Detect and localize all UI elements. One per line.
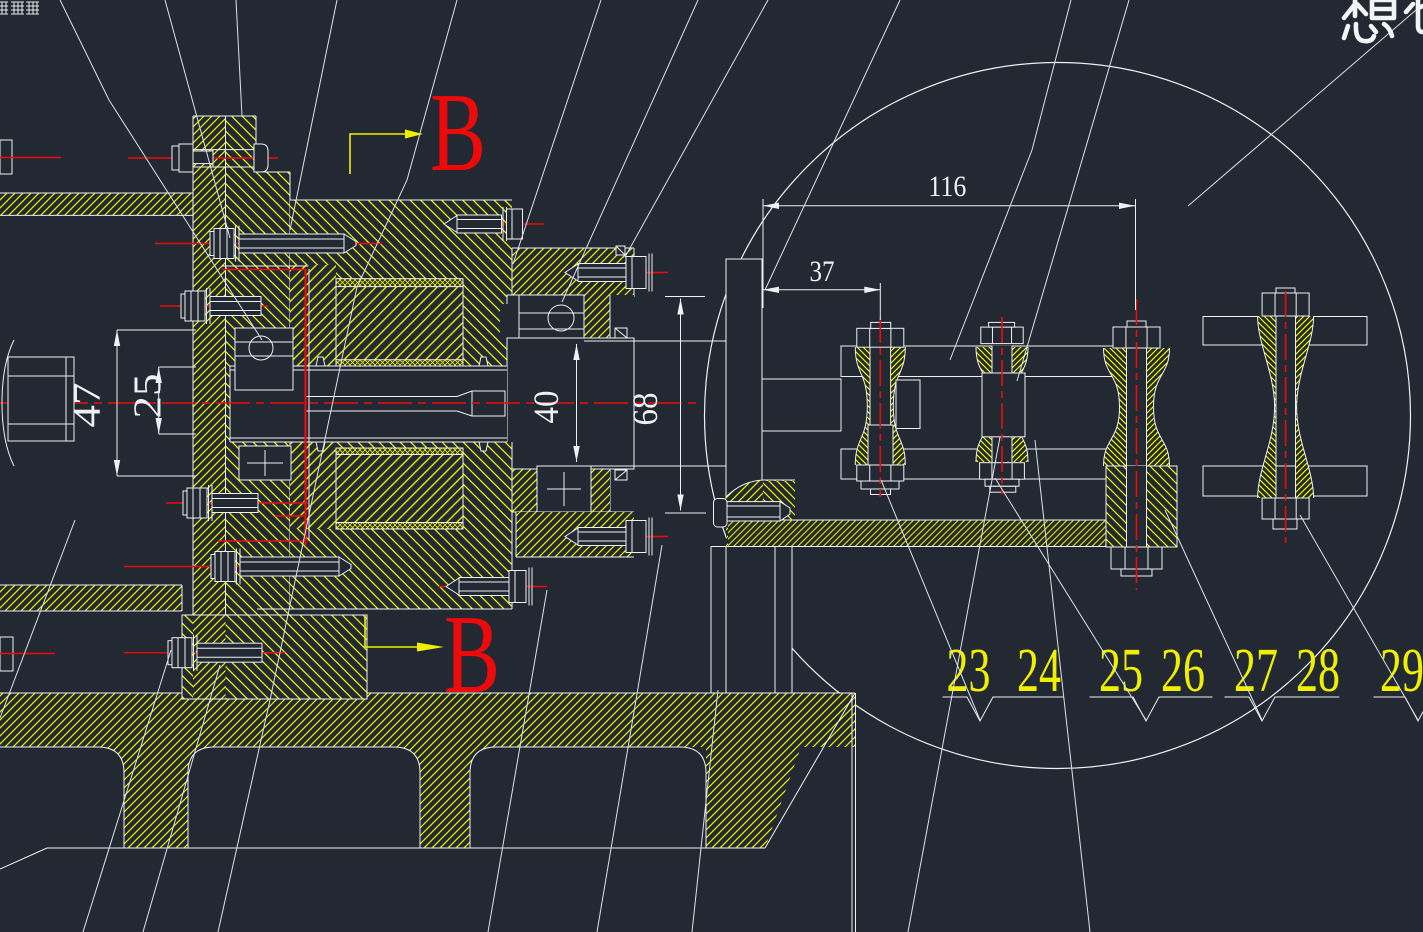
svg-text:29: 29 — [1380, 637, 1423, 705]
svg-text:27: 27 — [1234, 637, 1278, 705]
svg-text:116: 116 — [928, 170, 966, 203]
svg-text:B: B — [444, 593, 500, 717]
svg-text:25: 25 — [1099, 637, 1143, 705]
svg-text:68: 68 — [625, 393, 665, 426]
svg-text:23: 23 — [947, 637, 991, 705]
svg-text:47: 47 — [66, 383, 109, 428]
svg-text:25: 25 — [126, 374, 169, 419]
svg-text:37: 37 — [810, 255, 835, 288]
svg-text:26: 26 — [1161, 637, 1205, 705]
svg-text:24: 24 — [1017, 637, 1061, 705]
svg-text:B: B — [430, 71, 486, 195]
svg-text:28: 28 — [1296, 637, 1340, 705]
svg-text:40: 40 — [526, 391, 566, 424]
